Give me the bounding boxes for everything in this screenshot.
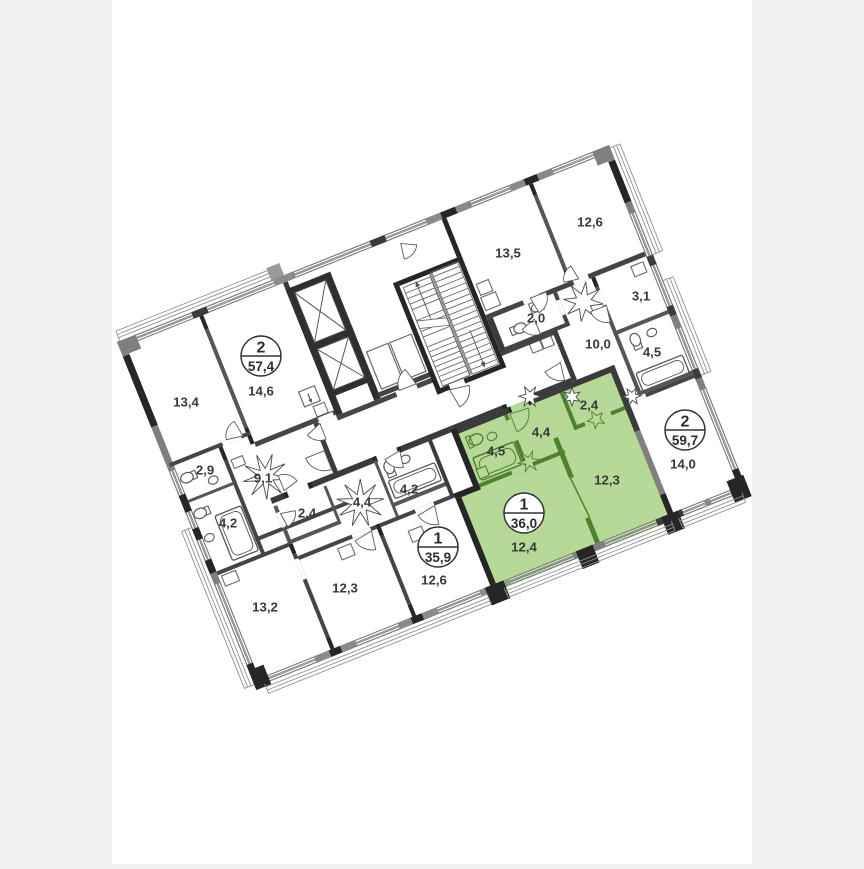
svg-text:35,9: 35,9 <box>425 550 451 565</box>
svg-text:13,5: 13,5 <box>495 246 521 261</box>
svg-text:3,1: 3,1 <box>632 289 650 304</box>
svg-text:1: 1 <box>434 531 443 548</box>
svg-text:2,0: 2,0 <box>527 311 545 326</box>
svg-text:4,5: 4,5 <box>643 345 661 360</box>
svg-text:14,6: 14,6 <box>248 384 274 399</box>
svg-text:12,6: 12,6 <box>421 573 447 588</box>
svg-text:2,4: 2,4 <box>298 506 317 521</box>
svg-text:13,2: 13,2 <box>252 600 278 615</box>
svg-text:14,0: 14,0 <box>670 457 696 472</box>
svg-text:59,7: 59,7 <box>672 433 698 448</box>
svg-text:36,0: 36,0 <box>511 516 537 531</box>
svg-text:12,3: 12,3 <box>594 473 620 488</box>
svg-text:12,6: 12,6 <box>577 215 603 230</box>
svg-text:2: 2 <box>681 414 690 431</box>
svg-text:4,2: 4,2 <box>219 516 237 531</box>
svg-text:1: 1 <box>520 497 529 514</box>
svg-text:9,1: 9,1 <box>254 471 272 486</box>
svg-text:10,0: 10,0 <box>585 337 611 352</box>
svg-text:4,2: 4,2 <box>400 482 418 497</box>
svg-text:2,9: 2,9 <box>196 463 214 478</box>
svg-text:12,3: 12,3 <box>332 581 358 596</box>
svg-text:13,4: 13,4 <box>173 395 199 410</box>
svg-text:4,5: 4,5 <box>487 444 505 459</box>
svg-text:4,4: 4,4 <box>532 425 551 440</box>
svg-text:57,4: 57,4 <box>248 359 275 374</box>
svg-text:4,4: 4,4 <box>353 495 372 510</box>
svg-text:2,4: 2,4 <box>580 398 599 413</box>
svg-text:2: 2 <box>257 340 266 357</box>
svg-text:12,4: 12,4 <box>511 540 537 555</box>
